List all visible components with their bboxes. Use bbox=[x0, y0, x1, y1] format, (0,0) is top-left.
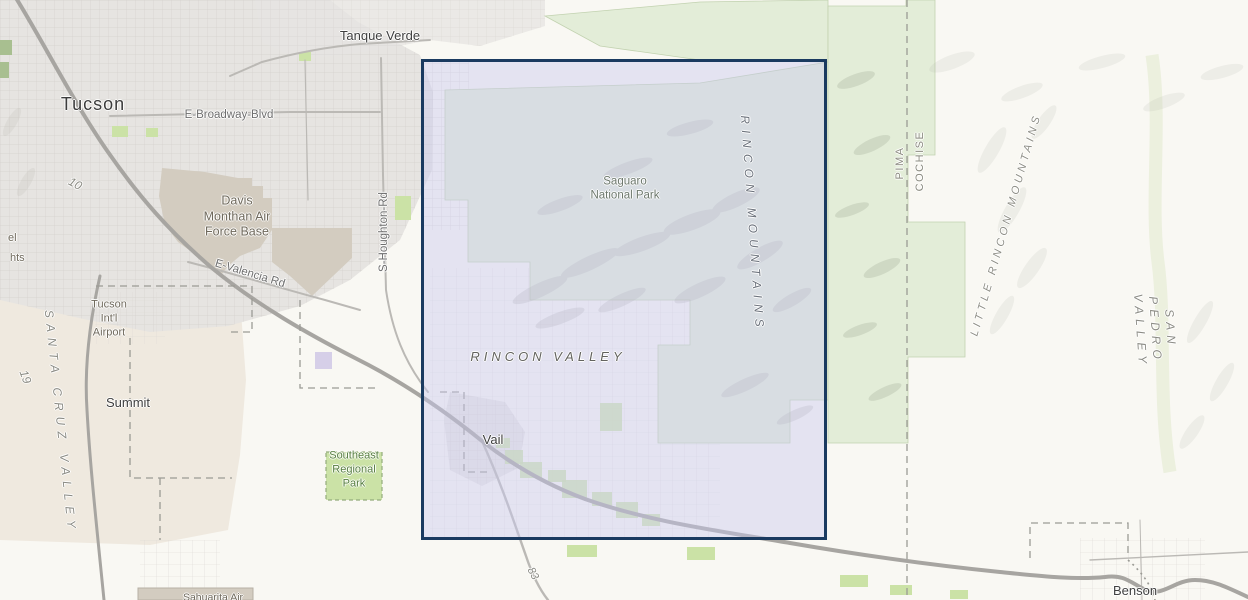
label-little-rincon-mountains: LITTLE RINCON MOUNTAINS bbox=[969, 112, 1046, 338]
label-highway-10: 10 bbox=[66, 174, 85, 194]
label-santa-cruz-valley: SANTA CRUZ VALLEY bbox=[41, 309, 79, 535]
label-tucson: Tucson bbox=[61, 93, 125, 116]
label-layer: Tucson Tanque Verde E-Broadway-Blvd Davi… bbox=[0, 0, 1248, 600]
label-san-pedro-valley: SAN PEDRO VALLEY bbox=[1129, 282, 1180, 378]
label-tanque-verde: Tanque Verde bbox=[340, 28, 420, 44]
map-canvas[interactable]: Tucson Tanque Verde E-Broadway-Blvd Davi… bbox=[0, 0, 1248, 600]
label-rincon-valley: RINCON VALLEY bbox=[470, 349, 625, 365]
label-saguaro-national-park: Saguaro National Park bbox=[590, 175, 659, 204]
label-summit: Summit bbox=[106, 395, 150, 411]
label-highway-19: 19 bbox=[16, 368, 35, 386]
label-s-houghton-rd: S-Houghton-Rd bbox=[377, 192, 391, 272]
label-edge-partial-hts: hts bbox=[10, 252, 25, 266]
label-sahuarita-air: Sahuarita Air bbox=[183, 591, 243, 600]
label-southeast-regional-park: Southeast Regional Park bbox=[329, 449, 379, 490]
label-e-broadway-blvd: E-Broadway-Blvd bbox=[185, 108, 274, 122]
label-pima-county: PIMA bbox=[894, 147, 908, 180]
label-highway-83: 83 bbox=[523, 565, 541, 582]
label-e-valencia-rd: E-Valencia Rd bbox=[213, 257, 287, 292]
label-rincon-mountains: RINCON MOUNTAINS bbox=[737, 115, 767, 333]
label-cochise-county: COCHISE bbox=[914, 131, 928, 192]
label-benson: Benson bbox=[1113, 583, 1157, 599]
label-davis-monthan-afb: Davis Monthan Air Force Base bbox=[204, 194, 271, 241]
label-vail: Vail bbox=[483, 432, 504, 448]
label-edge-partial-el: el bbox=[8, 232, 17, 246]
label-tucson-intl-airport: Tucson Int'l Airport bbox=[91, 298, 127, 339]
